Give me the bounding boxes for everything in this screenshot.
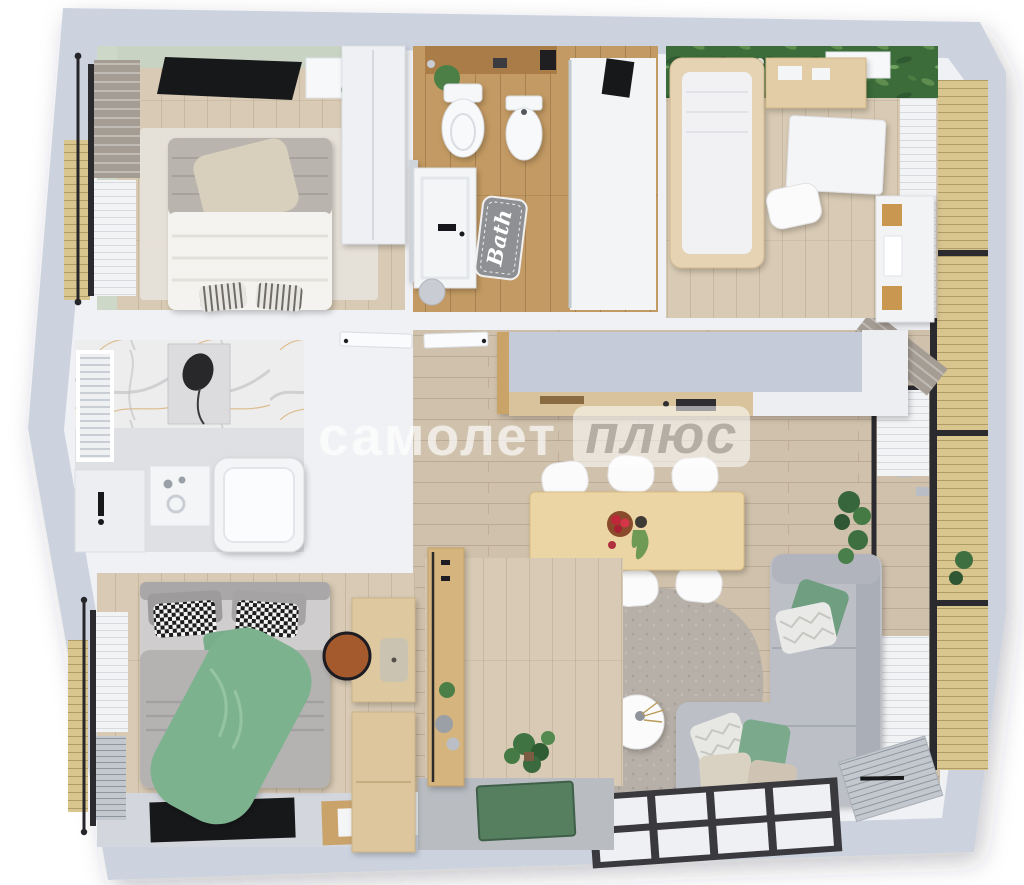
small-bowl <box>635 516 647 528</box>
berries <box>614 525 622 533</box>
desk-item <box>392 658 397 663</box>
kitchen-cabinet-front <box>509 332 869 392</box>
berries <box>621 519 630 528</box>
chair <box>671 456 720 496</box>
deck-light <box>916 487 929 496</box>
bath-mat: Bath <box>474 196 527 281</box>
storage-box <box>882 286 902 310</box>
storage-box <box>882 204 902 226</box>
changing-dresser <box>766 58 866 108</box>
tv-panel <box>157 57 302 100</box>
room-bathroom-second <box>75 340 304 552</box>
door-mat <box>477 782 576 841</box>
room-bedroom-master <box>64 46 405 312</box>
sheer-blind <box>94 180 136 296</box>
kitchen-counter <box>497 330 908 416</box>
vase <box>447 738 460 751</box>
rod-finial <box>75 53 82 60</box>
shelf-plant <box>439 682 455 698</box>
window-blind <box>96 612 128 732</box>
bathtub <box>214 458 304 552</box>
stool <box>419 279 445 305</box>
vase <box>435 715 453 733</box>
hook <box>441 576 450 581</box>
door-handle <box>482 339 486 343</box>
black-faucet <box>438 224 456 231</box>
kitchen-sink <box>676 399 716 411</box>
balcony-deck <box>936 80 988 770</box>
flush-plate <box>493 58 507 68</box>
tall-cabinet-fridge <box>862 330 908 416</box>
cutting-board <box>540 396 584 404</box>
desk-chair <box>324 633 370 679</box>
bed-master <box>168 135 332 312</box>
washer-knob <box>164 480 173 489</box>
vanity <box>409 160 476 288</box>
chair <box>607 454 655 493</box>
sofa-armrest <box>772 554 880 584</box>
window-frame <box>90 610 96 826</box>
kitchen-side-panel <box>497 332 509 414</box>
room-bedroom-second <box>68 573 415 852</box>
jar <box>427 60 435 68</box>
crib <box>670 58 764 268</box>
radiator <box>96 736 126 820</box>
shower-area <box>570 58 656 310</box>
wall-mirror-deco <box>540 50 556 70</box>
room-bathroom-main: Bath <box>409 46 658 312</box>
striped-pillow <box>255 282 303 312</box>
rod-finial <box>75 299 82 306</box>
hallway <box>418 548 623 850</box>
coat-rack <box>428 548 464 786</box>
shower-fixture <box>602 58 635 98</box>
dresser-items <box>812 68 830 80</box>
window-frame <box>88 64 94 296</box>
faucet <box>663 401 669 407</box>
window-mullion <box>930 600 988 606</box>
sink-counter <box>75 470 145 552</box>
washer-knob <box>179 477 186 484</box>
window-mullion <box>930 250 988 256</box>
kitchen-countertop-white <box>753 392 869 416</box>
door-leaf <box>340 332 412 349</box>
rod-finial <box>81 597 87 603</box>
black-faucet <box>98 492 104 516</box>
window-mullion <box>930 430 988 436</box>
door-leaf <box>424 332 488 348</box>
bidet <box>506 96 542 160</box>
floorplan-svg: Bath <box>0 0 1024 885</box>
toilet <box>442 84 484 157</box>
room-nursery <box>666 46 938 322</box>
rod-finial <box>81 829 87 835</box>
door-handle <box>344 339 348 343</box>
berries <box>611 515 621 525</box>
towel-niche <box>78 352 112 460</box>
bookcase <box>876 196 934 322</box>
striped-pillow <box>199 282 247 313</box>
fruit <box>608 541 616 549</box>
roman-shade <box>94 60 140 178</box>
shelf-books <box>884 236 902 276</box>
checkered-pillow <box>153 600 217 638</box>
drain <box>98 519 104 525</box>
floorplan-render: Bath <box>0 0 1024 885</box>
dresser-items <box>778 66 802 80</box>
hook <box>441 560 450 565</box>
